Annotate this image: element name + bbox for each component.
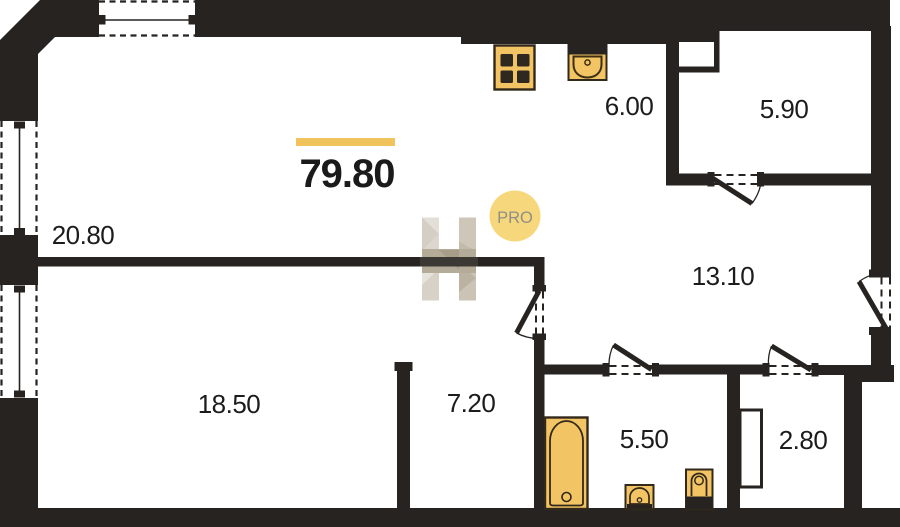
svg-text:5.90: 5.90 bbox=[760, 94, 809, 124]
svg-text:7.20: 7.20 bbox=[447, 388, 496, 418]
svg-text:13.10: 13.10 bbox=[692, 261, 755, 291]
svg-text:5.50: 5.50 bbox=[620, 424, 669, 454]
svg-text:18.50: 18.50 bbox=[198, 389, 261, 419]
svg-text:2.80: 2.80 bbox=[779, 425, 828, 455]
svg-text:79.80: 79.80 bbox=[299, 152, 394, 196]
svg-text:PRO: PRO bbox=[497, 209, 533, 227]
svg-text:6.00: 6.00 bbox=[605, 91, 654, 121]
svg-text:20.80: 20.80 bbox=[52, 220, 115, 250]
